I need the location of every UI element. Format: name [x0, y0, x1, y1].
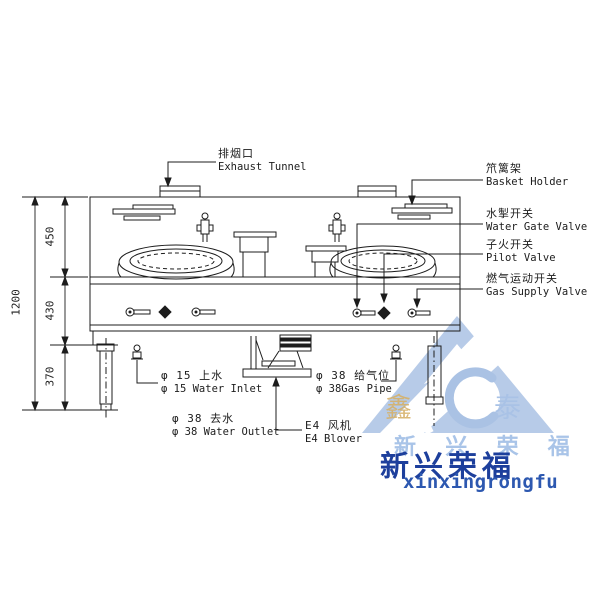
stove-line-drawing — [0, 0, 600, 600]
dim-segment-bottom: 370 — [44, 357, 57, 397]
exhaust-outlet-right — [358, 186, 396, 197]
control-knobs-right — [353, 307, 430, 319]
label-basket-holder: 笊篱架 Basket Holder — [486, 163, 568, 188]
leader-water-gate-valve — [354, 224, 483, 307]
label-pilot-valve: 子火开关 Pilot Valve — [486, 239, 556, 264]
basket-holder-right — [392, 204, 452, 219]
faucet-left — [197, 213, 213, 242]
gas-pipe-right — [426, 331, 443, 426]
label-gas-supply-valve-en: Gas Supply Valve — [486, 286, 587, 298]
label-exhaust-tunnel: 排烟口 Exhaust Tunnel — [218, 148, 307, 173]
label-gas-supply-valve-zh: 燃气运动开关 — [486, 273, 587, 286]
pot-right — [306, 246, 346, 277]
label-water-outlet-en: φ 38 Water Outlet — [172, 426, 279, 438]
label-exhaust-tunnel-en: Exhaust Tunnel — [218, 161, 307, 173]
label-gas-supply-valve: 燃气运动开关 Gas Supply Valve — [486, 273, 587, 298]
label-water-outlet-zh: φ 38 去水 — [172, 413, 279, 426]
label-blower-zh: E4 风机 — [305, 420, 362, 433]
basket-holder-left — [113, 205, 175, 220]
label-basket-holder-en: Basket Holder — [486, 176, 568, 188]
control-knobs-left — [126, 306, 215, 318]
label-pilot-valve-en: Pilot Valve — [486, 252, 556, 264]
watermark-brand-latin: xinxingrongfu — [403, 471, 558, 493]
pot-left — [234, 232, 276, 277]
label-pilot-valve-zh: 子火开关 — [486, 239, 556, 252]
label-gas-pipe-zh: φ 38 给气位 — [316, 370, 392, 383]
leader-exhaust — [165, 162, 216, 186]
exhaust-outlet-left — [160, 186, 200, 197]
label-water-inlet: φ 15 上水 φ 15 Water Inlet — [161, 370, 262, 395]
dim-total-height: 1200 — [10, 279, 23, 327]
label-water-gate-valve-zh: 水掣开关 — [486, 208, 587, 221]
label-gas-pipe-en: φ 38Gas Pipe — [316, 383, 392, 395]
stove-body — [90, 197, 460, 331]
label-water-inlet-zh: φ 15 上水 — [161, 370, 262, 383]
water-inlet-fitting — [131, 345, 158, 383]
label-blower-en: E4 Blover — [305, 433, 362, 445]
leader-basket-holder — [409, 180, 483, 204]
wok-ring-left — [118, 245, 234, 279]
label-basket-holder-zh: 笊篱架 — [486, 163, 568, 176]
water-outlet-pipe-left — [93, 331, 114, 418]
label-water-gate-valve: 水掣开关 Water Gate Valve — [486, 208, 587, 233]
label-gas-pipe: φ 38 给气位 φ 38Gas Pipe — [316, 370, 392, 395]
dim-segment-middle: 430 — [44, 291, 57, 331]
label-water-outlet: φ 38 去水 φ 38 Water Outlet — [172, 413, 279, 438]
label-blower: E4 风机 E4 Blover — [305, 420, 362, 445]
dimension-lines — [22, 197, 118, 410]
label-water-inlet-en: φ 15 Water Inlet — [161, 383, 262, 395]
dim-segment-top: 450 — [44, 217, 57, 257]
leader-gas-supply-valve — [414, 289, 483, 307]
technical-drawing-canvas: 排烟口 Exhaust Tunnel 笊篱架 Basket Holder 水掣开… — [0, 0, 600, 600]
label-exhaust-tunnel-zh: 排烟口 — [218, 148, 307, 161]
faucet-right — [329, 213, 345, 242]
label-water-gate-valve-en: Water Gate Valve — [486, 221, 587, 233]
